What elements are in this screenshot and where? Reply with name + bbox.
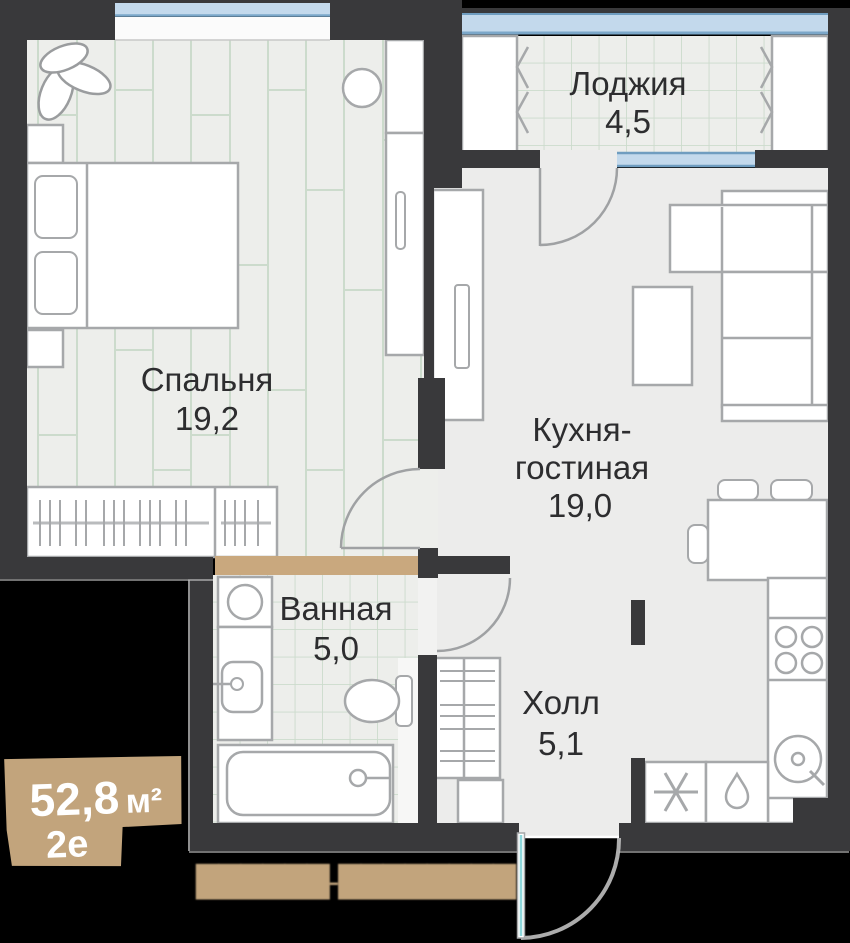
floor-plan-canvas: Спальня 19,2 Кухня- гостиная 19,0 Лоджия… (0, 0, 850, 943)
badge-layout-code: 2е (45, 823, 89, 866)
balcony-doorway-floor (540, 150, 617, 168)
bedroom-window (115, 3, 330, 40)
sink-faucet-icon (231, 678, 243, 690)
loggia-cabinet-right (772, 36, 828, 152)
nightstand-top (27, 125, 63, 163)
toilet-bowl (345, 680, 399, 722)
loggia-cabinet-left (462, 36, 517, 152)
stool (343, 69, 381, 107)
bathtub-drain-icon (350, 770, 366, 786)
badge-area-value: 52,8 (29, 771, 120, 826)
balcony-window (617, 152, 755, 167)
bedroom-label: Спальня (141, 361, 274, 398)
dining-table (708, 500, 827, 580)
mirror (396, 192, 405, 249)
bathroom-doorway-floor (418, 578, 437, 655)
kitchen-label-line1: Кухня- (532, 411, 631, 448)
coffee-table (633, 287, 692, 385)
chair-3 (688, 525, 708, 563)
bathroom-area: 5,0 (313, 630, 359, 667)
entrance-door-arc (521, 838, 619, 938)
tv (455, 285, 469, 368)
sofa-armrest (722, 405, 828, 421)
chair-1 (718, 480, 758, 500)
area-badge: 52,8 м² 2е (4, 753, 185, 870)
kitchen-area: 19,0 (548, 487, 612, 524)
sofa-seat-top (670, 205, 828, 272)
bathroom-label: Ванная (279, 590, 392, 627)
hall-area: 5,1 (538, 725, 584, 762)
bathtub (218, 745, 393, 823)
floor-plan: Спальня 19,2 Кухня- гостиная 19,0 Лоджия… (0, 0, 850, 943)
entrance-door (518, 833, 620, 938)
kitchen-label-line2: гостиная (515, 449, 649, 486)
hall-cabinet (458, 780, 503, 823)
pillow-2 (35, 252, 77, 314)
watermark: ██████-████████ (195, 863, 517, 900)
dresser-top (386, 40, 424, 133)
kitchen-counter (768, 578, 827, 823)
loggia-area: 4,5 (605, 103, 651, 140)
loggia-glazing (462, 13, 828, 33)
pillow-1 (35, 176, 77, 238)
chair-2 (771, 480, 812, 500)
loggia-label: Лоджия (570, 65, 687, 102)
duct-strip (215, 556, 418, 575)
nightstand-bottom (27, 330, 63, 367)
hall-label: Холл (522, 684, 600, 721)
bedroom-area: 19,2 (175, 400, 239, 437)
badge-area-unit: м² (125, 782, 163, 821)
bedroom-doorway-floor (418, 469, 438, 548)
